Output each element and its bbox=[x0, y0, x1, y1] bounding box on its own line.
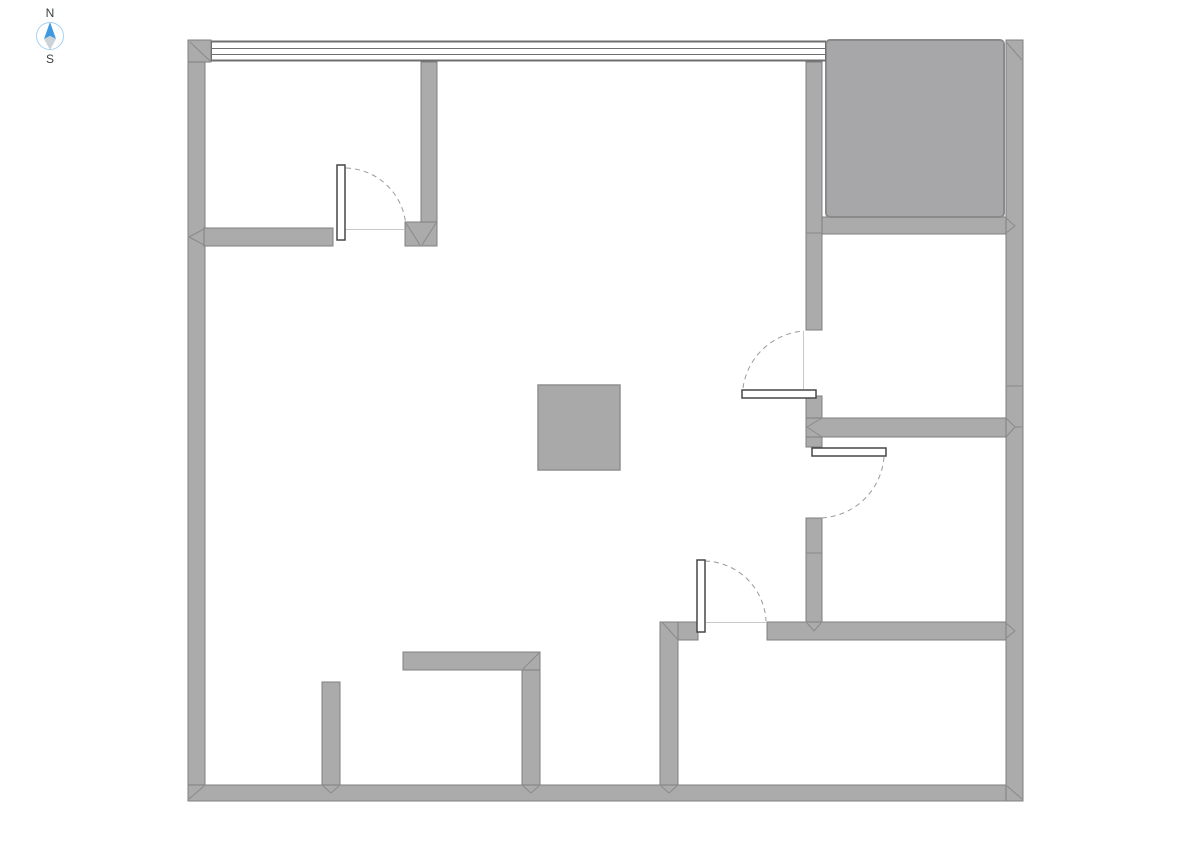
floor-plan-drawing bbox=[0, 0, 1191, 842]
room1-bottom-wall bbox=[204, 228, 333, 246]
outer-wall-bottom bbox=[188, 785, 1023, 801]
door-right-upper-room-leaf bbox=[742, 390, 816, 398]
door-top-left-room-swing-arc bbox=[346, 168, 406, 229]
bottom-center-wall bbox=[660, 622, 678, 785]
door-bottom-right-room-swing-arc bbox=[705, 561, 766, 621]
l-wall-vertical bbox=[522, 670, 540, 785]
shaft-block bbox=[826, 40, 1004, 217]
door-top-left-room-leaf bbox=[337, 165, 345, 240]
door-right-upper-room-swing-arc bbox=[743, 331, 804, 388]
bottom-right-wall-east bbox=[767, 622, 1006, 640]
room1-right-wall bbox=[421, 62, 437, 224]
east-wall-lower bbox=[806, 518, 822, 622]
column-block bbox=[538, 385, 620, 470]
door-bottom-right-room-leaf bbox=[697, 560, 705, 632]
east-wall-upper bbox=[806, 62, 822, 330]
floor-plan-stage: N S bbox=[0, 0, 1191, 842]
l-wall-horizontal bbox=[403, 652, 540, 670]
outer-wall-left bbox=[188, 40, 205, 801]
middle-right-wall bbox=[806, 418, 1006, 437]
shaft-bottom-wall bbox=[822, 217, 1006, 234]
door-right-lower-room-swing-arc bbox=[819, 457, 884, 518]
bottom-left-stub-wall bbox=[322, 682, 340, 785]
room1-right-wall-foot bbox=[405, 222, 437, 246]
door-right-lower-room-leaf bbox=[812, 448, 886, 456]
